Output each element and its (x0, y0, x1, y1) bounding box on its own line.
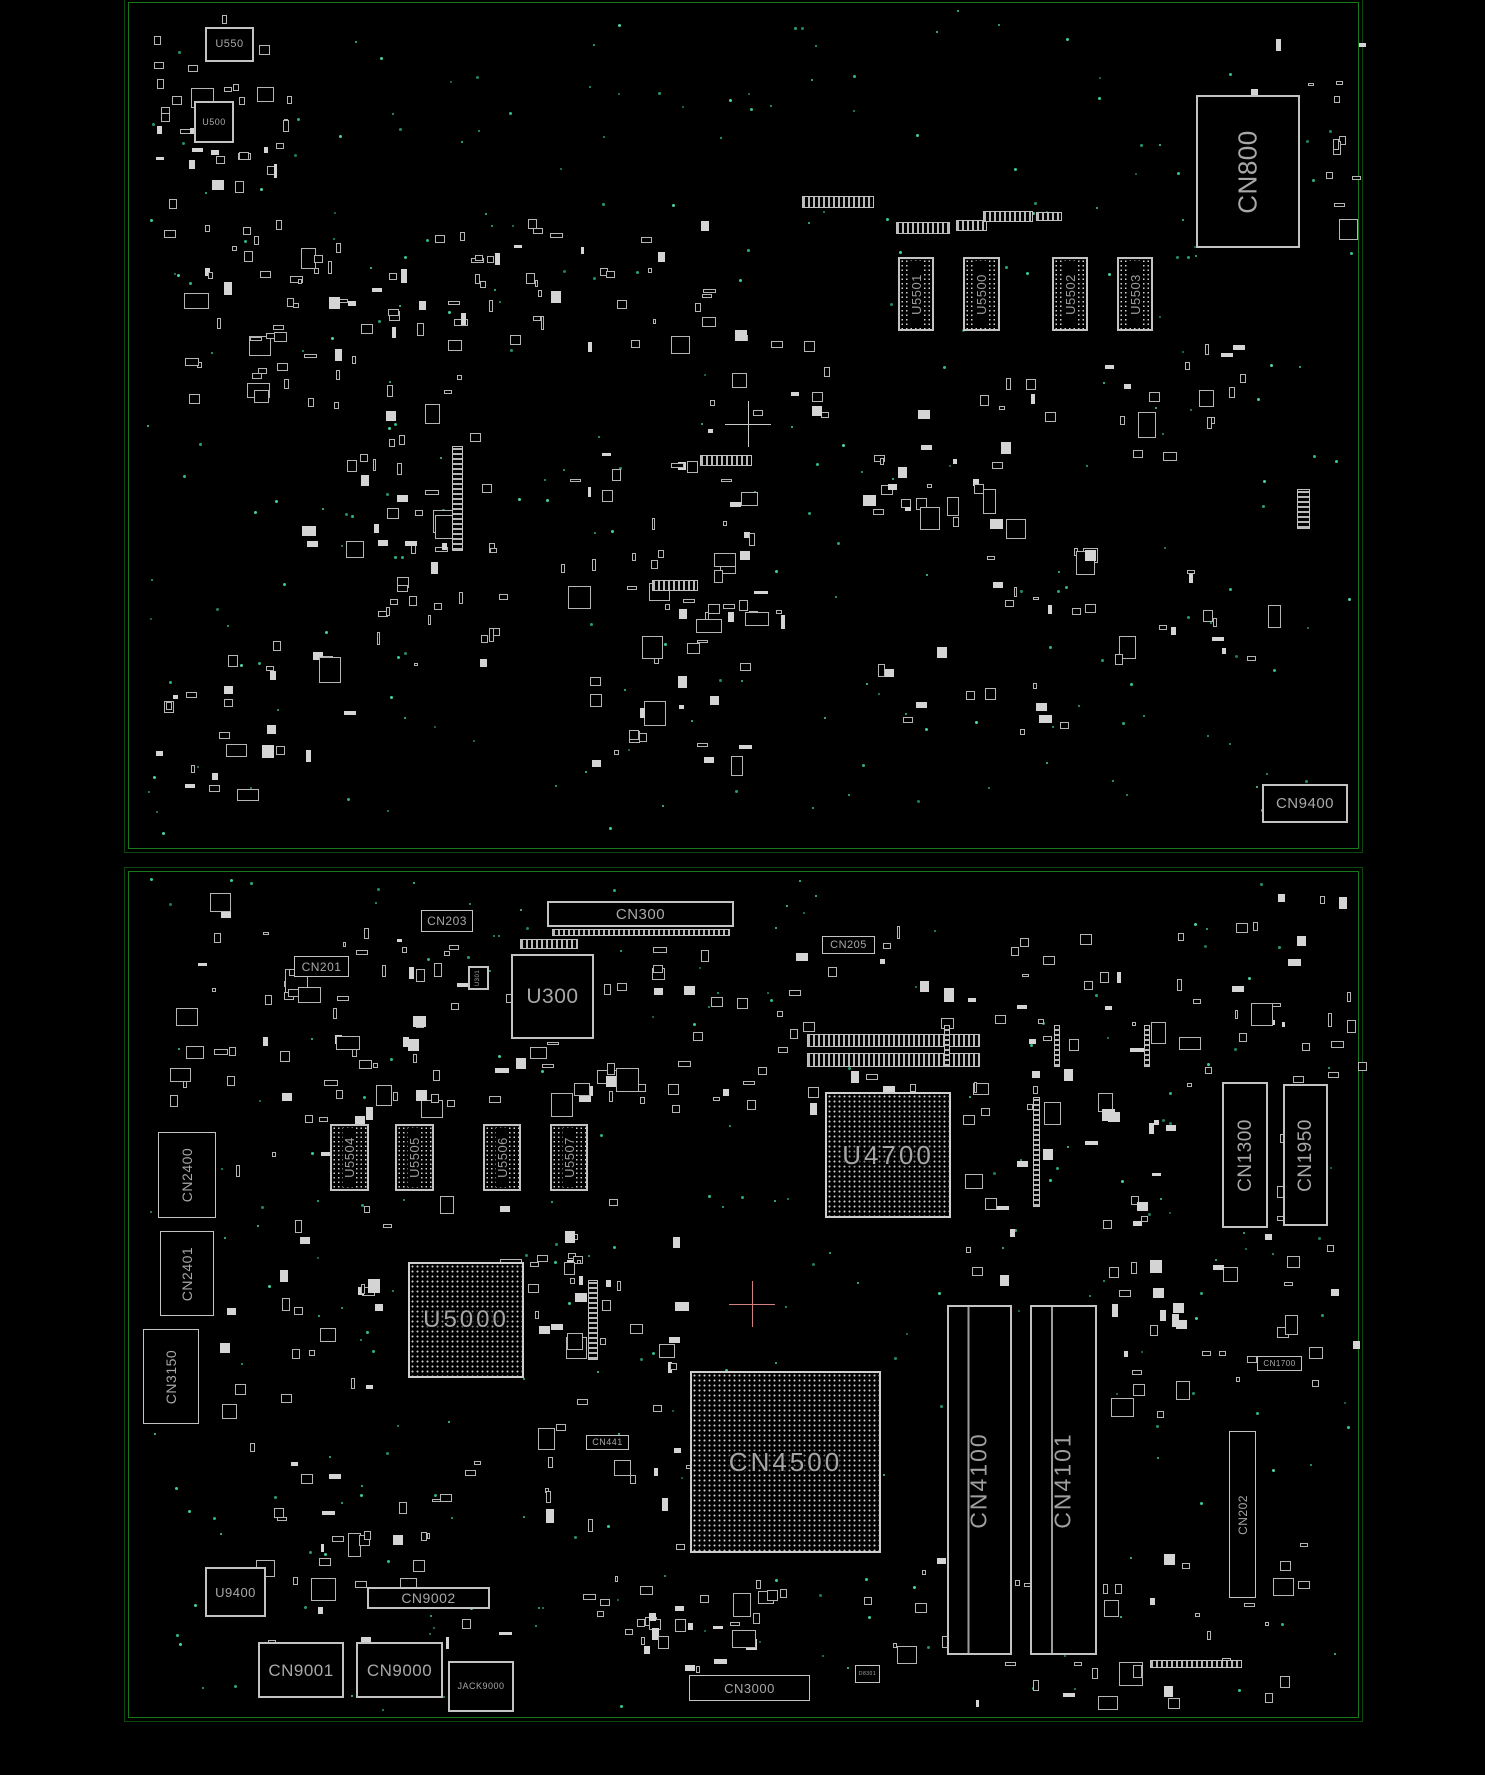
component-cn202[interactable]: CN202 (1229, 1431, 1256, 1598)
component-cn9001[interactable]: CN9001 (258, 1642, 344, 1698)
component-u5503[interactable]: U5503 (1117, 257, 1153, 331)
smd-part (963, 1115, 975, 1125)
component-label: CN202 (1237, 1495, 1249, 1535)
smd-part (1150, 1260, 1162, 1273)
smd-part (965, 1174, 983, 1189)
component-u5507[interactable]: U5507 (550, 1124, 588, 1191)
smd-part (482, 484, 492, 493)
smd-part (588, 342, 592, 352)
smd-part (1339, 897, 1347, 909)
smd-part (1010, 1229, 1015, 1237)
via-dot (1066, 38, 1069, 41)
smd-part (235, 181, 244, 193)
smd-part (1036, 703, 1047, 711)
smd-part (227, 1308, 236, 1315)
smd-part (276, 746, 285, 755)
via-dot (1056, 1167, 1059, 1170)
via-dot (594, 532, 596, 534)
smd-part (428, 615, 431, 625)
via-dot (1321, 1314, 1324, 1317)
component-cn2401[interactable]: CN2401 (160, 1231, 214, 1316)
smd-part (495, 253, 500, 265)
via-dot (194, 1604, 197, 1607)
via-dot (1238, 1689, 1241, 1692)
via-dot (347, 798, 350, 801)
via-dot (1206, 928, 1208, 930)
smd-part (937, 1558, 946, 1564)
pin-header-strip (1297, 489, 1310, 529)
pin-header-strip (944, 1025, 950, 1067)
component-label: U5506 (496, 1137, 509, 1178)
smd-part (711, 997, 723, 1007)
smd-part (812, 406, 822, 416)
via-dot (325, 631, 328, 634)
via-dot (819, 1594, 822, 1597)
smd-part (703, 289, 716, 293)
smd-part (693, 1032, 703, 1041)
via-dot (812, 1263, 815, 1266)
via-dot (1103, 382, 1105, 384)
smd-part (1176, 1381, 1190, 1400)
via-dot (430, 1615, 432, 1617)
smd-part (1173, 1303, 1184, 1313)
smd-part (192, 148, 203, 152)
smd-part (262, 745, 274, 758)
smd-part (966, 1247, 971, 1253)
smd-part (804, 341, 815, 352)
smd-part (565, 1231, 575, 1243)
via-dot (360, 1494, 363, 1497)
smd-part (343, 942, 346, 947)
smd-part (1298, 1581, 1310, 1589)
smd-part (1187, 1083, 1192, 1087)
via-dot (998, 24, 1000, 26)
via-dot (1190, 409, 1192, 411)
smd-part (260, 271, 271, 278)
smd-part (1358, 1062, 1367, 1071)
via-dot (526, 927, 529, 930)
smd-part (1293, 1076, 1304, 1083)
smd-part (696, 1666, 700, 1673)
smd-part (335, 349, 342, 361)
component-label: U301 (476, 970, 482, 986)
smd-part (185, 784, 195, 788)
via-dot (770, 105, 772, 107)
smd-part (374, 524, 379, 533)
smd-part (676, 1544, 685, 1550)
smd-part (233, 84, 239, 91)
smd-part (653, 1405, 662, 1412)
smd-part (270, 671, 276, 680)
smd-part (1179, 1037, 1201, 1050)
via-dot (150, 618, 152, 620)
smd-part (1063, 1693, 1075, 1697)
via-dot (274, 1496, 277, 1499)
smd-part (1353, 1341, 1360, 1349)
via-dot (403, 1199, 405, 1201)
smd-part (675, 1606, 684, 1611)
via-dot (868, 1616, 871, 1619)
via-dot (1089, 1295, 1091, 1297)
smd-part (568, 586, 591, 609)
component-label: U5505 (408, 1137, 421, 1178)
via-dot (815, 45, 817, 47)
via-dot (183, 475, 186, 478)
smd-part (1171, 627, 1176, 635)
smd-part (600, 1599, 610, 1606)
smd-part (630, 1324, 643, 1334)
smd-part (1168, 1698, 1180, 1709)
component-cn1300[interactable]: CN1300 (1222, 1082, 1268, 1228)
via-dot (652, 1016, 654, 1018)
via-dot (394, 423, 397, 426)
component-u300[interactable]: U300 (511, 954, 594, 1039)
smd-part (475, 255, 483, 261)
smd-part (905, 507, 911, 511)
component-cn203[interactable]: CN203 (421, 910, 473, 932)
smd-part (301, 1474, 313, 1484)
smd-part (189, 394, 200, 404)
component-cn4500[interactable]: CN4500 (690, 1371, 881, 1553)
smd-part (640, 1586, 653, 1595)
smd-part (235, 1384, 246, 1395)
via-dot (1194, 923, 1197, 926)
via-dot (150, 878, 153, 881)
component-u5505[interactable]: U5505 (395, 1124, 434, 1191)
via-dot (378, 320, 381, 323)
via-dot (1272, 1469, 1275, 1472)
component-cn9002[interactable]: CN9002 (367, 1587, 490, 1609)
component-label: CN1300 (1236, 1119, 1255, 1192)
smd-part (1150, 1598, 1155, 1605)
via-dot (598, 436, 600, 438)
via-dot (775, 927, 777, 929)
smd-part (1005, 600, 1014, 607)
smd-part (425, 490, 439, 495)
component-u5501[interactable]: U5501 (898, 257, 934, 331)
smd-part (309, 1350, 315, 1356)
smd-part (653, 965, 663, 973)
component-cn9000[interactable]: CN9000 (356, 1642, 443, 1698)
smd-part (588, 1519, 593, 1532)
smd-part (1327, 1245, 1334, 1252)
smd-part (533, 228, 543, 234)
via-dot (940, 1405, 943, 1408)
via-dot (842, 444, 845, 447)
smd-part (280, 1051, 290, 1062)
smd-part (767, 1590, 778, 1601)
via-dot (339, 135, 342, 138)
via-dot (382, 1709, 384, 1711)
via-dot (853, 110, 855, 112)
smd-part (658, 550, 664, 558)
component-cn1700[interactable]: CN1700 (1257, 1356, 1302, 1371)
smd-part (413, 1054, 417, 1063)
smd-part (575, 1293, 587, 1302)
smd-part (617, 983, 627, 991)
smd-part (210, 893, 231, 912)
smd-part (444, 951, 450, 956)
smd-part (749, 533, 755, 546)
via-dot (750, 108, 753, 111)
via-dot (1335, 460, 1338, 463)
smd-part (617, 1281, 621, 1291)
smd-part (679, 609, 687, 619)
via-dot (1266, 773, 1268, 775)
component-u9400[interactable]: U9400 (205, 1567, 266, 1617)
component-u4700[interactable]: U4700 (825, 1092, 951, 1218)
smd-part (985, 1198, 997, 1210)
smd-part (740, 551, 750, 560)
via-dot (1049, 1179, 1052, 1182)
smd-part (530, 1262, 539, 1267)
via-dot (1347, 1426, 1350, 1429)
via-dot (1177, 172, 1180, 175)
smd-part (564, 1262, 575, 1275)
smd-part (329, 297, 340, 309)
via-dot (258, 662, 261, 665)
smd-part (419, 301, 426, 310)
smd-part (1153, 1288, 1164, 1298)
smd-part (364, 1531, 371, 1540)
via-dot (555, 785, 557, 787)
smd-part (993, 582, 1003, 588)
via-dot (747, 249, 750, 252)
via-dot (399, 128, 402, 131)
via-dot (1334, 1653, 1336, 1655)
via-dot (1140, 144, 1143, 147)
via-dot (250, 882, 253, 885)
component-label: CN800 (1235, 130, 1261, 213)
via-dot (259, 1100, 261, 1102)
smd-part (602, 490, 613, 502)
via-dot (926, 574, 928, 576)
component-cn2400[interactable]: CN2400 (158, 1132, 216, 1218)
smd-part (1160, 1310, 1166, 1321)
smd-part (696, 619, 722, 633)
via-dot (499, 301, 501, 303)
via-dot (1067, 1146, 1069, 1148)
component-u500[interactable]: U500 (194, 101, 234, 143)
via-dot (380, 57, 383, 60)
smd-part (1328, 1013, 1332, 1027)
via-dot (574, 1536, 577, 1539)
component-cn4101[interactable]: CN4101 (1030, 1305, 1097, 1655)
smd-part (397, 495, 408, 502)
component-cn3150[interactable]: CN3150 (143, 1329, 199, 1424)
smd-part (880, 959, 885, 964)
smd-part (1133, 1665, 1142, 1678)
smd-part (378, 540, 388, 546)
via-dot (611, 530, 614, 533)
component-cn800[interactable]: CN800 (1196, 95, 1300, 248)
smd-part (211, 150, 219, 155)
via-dot (735, 790, 738, 793)
component-cn3000[interactable]: CN3000 (689, 1675, 810, 1701)
via-dot (1107, 1037, 1109, 1039)
smd-part (1265, 1622, 1269, 1626)
smd-part (602, 1300, 611, 1311)
via-dot (1130, 1557, 1132, 1559)
via-dot (808, 222, 810, 224)
smd-part (780, 1589, 787, 1598)
component-cn201[interactable]: CN201 (294, 956, 349, 977)
smd-part (1202, 1351, 1211, 1356)
smd-part (776, 610, 782, 614)
smd-part (314, 255, 323, 263)
component-cn205[interactable]: CN205 (822, 936, 875, 954)
smd-part (863, 495, 876, 506)
via-dot (803, 912, 805, 914)
smd-part (254, 236, 259, 245)
component-label: U9400 (215, 1586, 256, 1599)
smd-part (291, 1462, 298, 1466)
smd-part (747, 1100, 756, 1110)
smd-part (1207, 1631, 1211, 1640)
smd-part (985, 688, 996, 700)
smd-part (1278, 894, 1285, 902)
smd-part (669, 1337, 680, 1343)
smd-part (1098, 1696, 1118, 1710)
smd-part (1072, 608, 1081, 615)
smd-part (1352, 176, 1361, 180)
via-dot (189, 282, 192, 285)
smd-part (953, 517, 959, 527)
smd-part (1005, 1662, 1016, 1666)
via-dot (699, 967, 701, 969)
via-dot (546, 499, 549, 502)
smd-part (898, 467, 907, 478)
smd-part (1149, 392, 1160, 402)
via-dot (1270, 364, 1273, 367)
board-origin-crosshair (729, 1281, 775, 1327)
via-dot (791, 426, 793, 428)
via-dot (227, 625, 229, 627)
via-dot (1263, 480, 1266, 483)
via-dot (1305, 780, 1308, 783)
via-dot (607, 1525, 610, 1528)
smd-part (1074, 1662, 1082, 1666)
via-dot (355, 41, 357, 43)
smd-part (1092, 1668, 1098, 1679)
smd-part (1112, 1304, 1118, 1317)
smd-part (1157, 1411, 1164, 1418)
via-dot (404, 256, 407, 259)
smd-part (1185, 362, 1190, 370)
smd-part (685, 1665, 695, 1671)
smd-part (1138, 412, 1156, 438)
smd-part (777, 1011, 783, 1017)
via-dot (585, 771, 587, 773)
via-dot (372, 1350, 375, 1353)
smd-part (324, 1080, 338, 1086)
via-dot (178, 51, 181, 54)
via-dot (392, 1290, 394, 1292)
via-dot (304, 1606, 307, 1609)
component-label: CN1950 (1296, 1119, 1315, 1192)
component-cn9400[interactable]: CN9400 (1262, 784, 1348, 823)
via-dot (1330, 1167, 1332, 1169)
component-u301[interactable]: U301 (468, 966, 489, 990)
smd-part (1103, 1220, 1112, 1229)
via-dot (899, 251, 902, 254)
component-u5000[interactable]: U5000 (408, 1262, 524, 1378)
via-dot (257, 1225, 259, 1227)
smd-part (186, 692, 197, 698)
component-cn441[interactable]: CN441 (586, 1435, 629, 1450)
smd-part (1236, 923, 1248, 933)
smd-part (617, 300, 627, 309)
via-dot (413, 882, 415, 884)
smd-part (304, 354, 317, 358)
via-dot (525, 1254, 528, 1257)
via-dot (701, 423, 703, 425)
smd-part (392, 327, 396, 338)
via-dot (1329, 130, 1332, 133)
component-u5506[interactable]: U5506 (483, 1124, 521, 1191)
via-dot (988, 787, 990, 789)
smd-part (728, 612, 734, 622)
smd-part (346, 541, 364, 558)
smd-part (1033, 1680, 1039, 1691)
smd-part (222, 15, 227, 24)
component-cn300[interactable]: CN300 (547, 901, 734, 927)
smd-part (1011, 947, 1019, 956)
component-label: CN2400 (180, 1148, 194, 1202)
smd-part (239, 152, 249, 160)
component-u5502[interactable]: U5502 (1052, 257, 1088, 331)
smd-part (1137, 1202, 1148, 1211)
via-dot (260, 188, 263, 191)
via-dot (318, 1315, 320, 1317)
smd-part (1159, 625, 1167, 630)
via-dot (890, 303, 893, 306)
smd-part (1285, 1315, 1298, 1335)
via-dot (1057, 590, 1060, 593)
smd-part (980, 395, 989, 406)
smd-part (1164, 1554, 1175, 1565)
component-jack9000[interactable]: JACK9000 (448, 1661, 514, 1712)
smd-part (910, 1084, 916, 1092)
smd-part (300, 1237, 310, 1244)
component-d8301[interactable]: D8301 (855, 1665, 880, 1683)
component-label: CN9400 (1276, 796, 1334, 811)
smd-part (397, 585, 408, 592)
smd-part (675, 1619, 686, 1632)
component-u5500[interactable]: U5500 (963, 257, 1000, 331)
component-cn4100[interactable]: CN4100 (947, 1305, 1012, 1655)
smd-part (687, 643, 700, 654)
component-u550[interactable]: U550 (205, 27, 254, 62)
crosshair-vline (752, 1281, 753, 1327)
smd-part (217, 318, 221, 329)
smd-part (1300, 1543, 1308, 1547)
via-dot (1156, 1425, 1159, 1428)
smd-part (537, 1255, 548, 1262)
component-u5504[interactable]: U5504 (330, 1124, 369, 1191)
smd-part (606, 1280, 611, 1287)
smd-part (903, 717, 913, 723)
via-dot (894, 1357, 897, 1360)
via-dot (811, 79, 813, 81)
smd-part (1104, 1600, 1119, 1617)
component-cn1950[interactable]: CN1950 (1283, 1084, 1328, 1226)
via-dot (717, 992, 719, 994)
smd-part (319, 1117, 328, 1122)
via-dot (620, 1705, 623, 1708)
smd-part (710, 696, 719, 705)
smd-part (397, 939, 402, 942)
